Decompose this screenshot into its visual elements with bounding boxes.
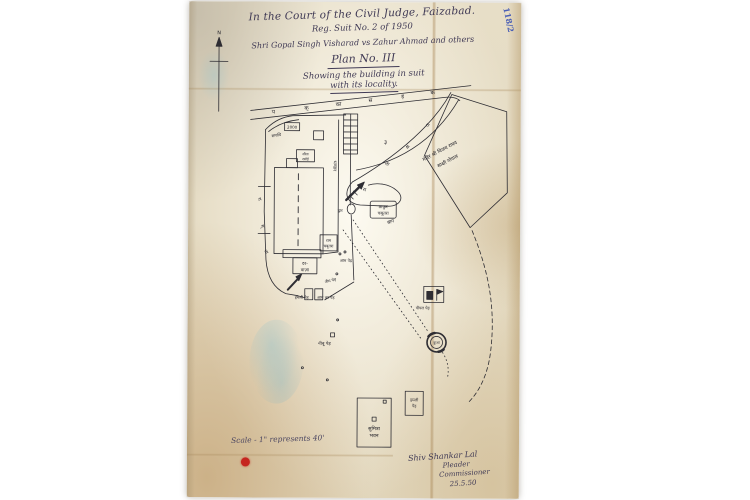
plot-number-box-label: 2000 bbox=[287, 125, 298, 130]
photographed-court-plan: N प क् का स ड़ क मंदिर श्री विजय राघव सा… bbox=[0, 0, 750, 500]
temple-plot-outline bbox=[424, 94, 508, 227]
tamarind-right-label-line2: पेड़ bbox=[412, 403, 417, 408]
tamarind-right-label-line1: इमली bbox=[410, 397, 419, 402]
flag-icon bbox=[437, 289, 443, 294]
thakur-label-line2: चबूतरा bbox=[378, 212, 390, 217]
red-ink-dot bbox=[241, 457, 250, 466]
pipal-tree-label: पीपल पेड़ bbox=[416, 305, 431, 310]
svg-text:ता: ता bbox=[384, 161, 391, 169]
flag-chabutra bbox=[424, 286, 444, 302]
sita-rasoi-label-line1: सीता bbox=[302, 151, 308, 156]
steps-structure bbox=[344, 114, 358, 154]
gate-label: द्वार bbox=[338, 208, 343, 213]
garden-label: बाग bbox=[387, 218, 396, 226]
svg-text:रा: रा bbox=[256, 197, 262, 202]
sumitra-label-line1: सुमित्रा bbox=[368, 425, 380, 432]
building-in-suit bbox=[274, 168, 323, 254]
ram-chabutra-label-line1: राम bbox=[326, 238, 332, 243]
svg-text:स: स bbox=[368, 98, 373, 104]
east-gate bbox=[347, 204, 355, 214]
mango-tree-gate-label: आम का पेड़ bbox=[317, 295, 335, 300]
well-label: कुआं bbox=[433, 341, 440, 345]
scatter-marks bbox=[301, 319, 338, 381]
bhandar-label: भण्डार bbox=[331, 161, 336, 172]
svg-text:का: का bbox=[335, 102, 342, 109]
scanned-paper-sheet: N प क् का स ड़ क मंदिर श्री विजय राघव सा… bbox=[187, 1, 522, 499]
lemon-tree-mark bbox=[331, 333, 335, 337]
samadhi-label: समाधि bbox=[271, 132, 282, 139]
svg-text:क: क bbox=[430, 90, 436, 97]
east-corridor bbox=[323, 120, 339, 254]
ram-chabutra-label-line2: चबूतरा bbox=[324, 243, 335, 249]
darwaza-label-line1: दर- bbox=[302, 262, 308, 267]
sumitra-label-line2: भवन bbox=[369, 433, 378, 439]
entrance-arrow-south bbox=[288, 274, 302, 290]
sumitra-bhavan bbox=[357, 398, 391, 447]
sita-rasoi-label-line2: रसोई bbox=[302, 156, 309, 161]
svg-text:स्: स् bbox=[259, 224, 265, 229]
thakur-label-line1: ठाकुर bbox=[379, 205, 388, 210]
darwaza-label-line2: वाज़ा bbox=[301, 268, 310, 273]
tamarind-tree-gate-label: इमली पेड़ bbox=[295, 295, 310, 300]
svg-text:रा: रा bbox=[424, 122, 431, 129]
exhibit-header: In the Court of the Civil Judge, Faizaba… bbox=[216, 4, 510, 97]
svg-text:क्: क् bbox=[304, 105, 310, 112]
signature-block: Shiv Shankar Lal Pleader Commissioner 25… bbox=[408, 447, 514, 491]
outer-path-letters: रा स् ता bbox=[256, 197, 270, 256]
svg-text:प: प bbox=[272, 109, 277, 115]
svg-text:रा: रा bbox=[362, 187, 367, 194]
open-plot-number: ३ bbox=[384, 139, 387, 146]
mango-tree-label: आम पेड़ bbox=[340, 258, 353, 263]
svg-text:ड़: ड़ bbox=[400, 94, 405, 100]
dotted-footpaths bbox=[342, 220, 493, 403]
lemon-tree-label: नीबू पेड़ bbox=[318, 340, 331, 347]
neem-tree-label: नीम पेड़ bbox=[324, 276, 337, 284]
